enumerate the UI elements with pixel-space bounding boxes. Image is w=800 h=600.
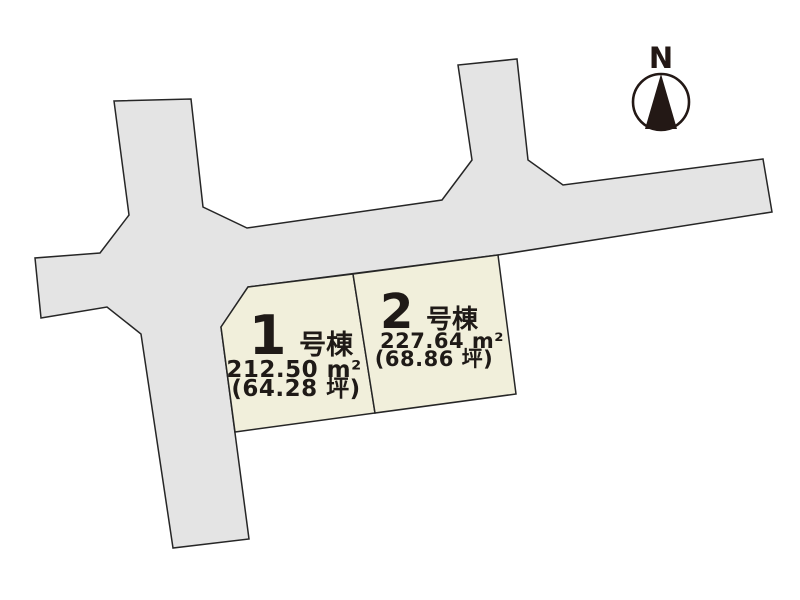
compass-needle-icon bbox=[645, 74, 677, 129]
site-plan-svg: 1 号棟 212.50 m² (64.28 坪) 2 号棟 227.64 m² … bbox=[0, 0, 800, 600]
lot-map: 1 号棟 212.50 m² (64.28 坪) 2 号棟 227.64 m² … bbox=[0, 0, 800, 600]
compass: N bbox=[633, 41, 689, 130]
compass-n-label: N bbox=[649, 41, 673, 75]
lot-1-area-tsubo: (64.28 坪) bbox=[231, 376, 360, 402]
lot-2-area-tsubo: (68.86 坪) bbox=[375, 347, 493, 371]
